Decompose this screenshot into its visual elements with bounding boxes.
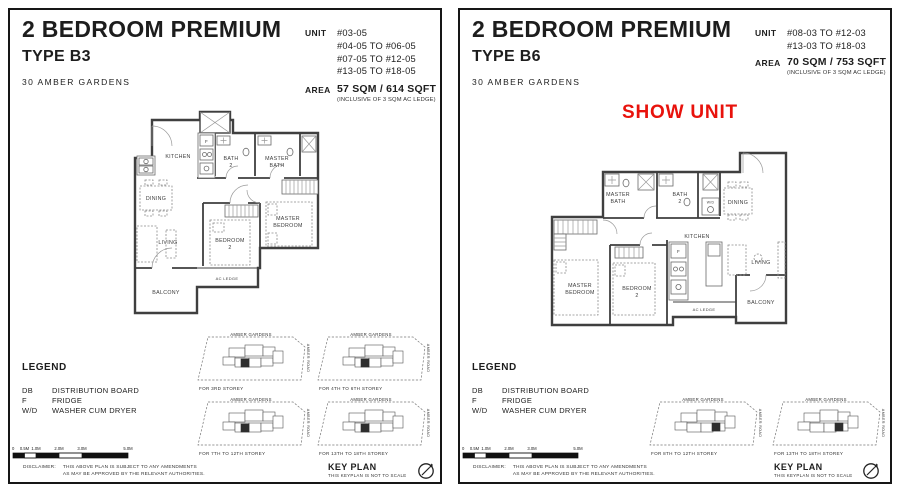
disclaimer: DISCLAIMER: THIS ABOVE PLAN IS SUBJECT T… — [473, 465, 655, 478]
svg-text:0: 0 — [12, 446, 15, 451]
room-label-living: LIVING — [751, 260, 770, 266]
keyplan-street-side: AMBER ROAD — [306, 344, 310, 373]
keyplan-caption: FOR 4TH TO 6TH STOREY — [319, 386, 382, 391]
kitchen-counter: F — [198, 133, 215, 178]
svg-text:2.0M: 2.0M — [54, 446, 64, 451]
legend-title: LEGEND — [472, 362, 589, 373]
disclaimer: DISCLAIMER: THIS ABOVE PLAN IS SUBJECT T… — [23, 465, 205, 478]
room-label-master-bath: MASTER — [606, 192, 630, 198]
svg-text:BEDROOM: BEDROOM — [565, 290, 594, 296]
svg-text:3.0M: 3.0M — [77, 446, 87, 451]
building-footprint — [223, 410, 283, 432]
legend-row: W/DWASHER CUM DRYER — [22, 406, 139, 416]
keyplan-caption: FOR 8TH TO 12TH STOREY — [651, 451, 717, 456]
unit-heading: UNIT — [755, 28, 776, 38]
disclaimer-text: THIS ABOVE PLAN IS SUBJECT TO ANY AMENDM… — [513, 465, 655, 478]
svg-text:5.0M: 5.0M — [573, 446, 583, 451]
legend-row: FFRIDGE — [472, 396, 589, 406]
keyplan-street-top: AMBER GARDENS — [230, 332, 272, 337]
svg-text:0.5M: 0.5M — [470, 446, 480, 451]
building-footprint — [675, 410, 735, 432]
unit-list: #08-03 TO #12-03 #13-03 TO #18-03 — [787, 27, 866, 53]
keyplan-caption: FOR 7TH TO 12TH STOREY — [199, 451, 265, 456]
highlighted-unit — [241, 424, 249, 432]
svg-text:3.0M: 3.0M — [527, 446, 537, 451]
room-label-balcony: BALCONY — [747, 300, 775, 306]
room-label-dining: DINING — [146, 196, 166, 202]
keyplan-note: THIS KEYPLAN IS NOT TO SCALE — [328, 473, 406, 478]
unit-list: #03-05 #04-05 TO #06-05 #07-05 TO #12-05… — [337, 27, 416, 78]
unit-line: #03-05 — [337, 27, 416, 40]
svg-text:AMBER ROAD: AMBER ROAD — [306, 409, 310, 438]
highlighted-unit — [712, 423, 720, 431]
svg-text:0.5M: 0.5M — [20, 446, 30, 451]
unit-line: #13-05 TO #18-05 — [337, 65, 416, 78]
svg-text:AMBER ROAD: AMBER ROAD — [426, 409, 430, 438]
keyplan-title: KEY PLAN — [774, 462, 852, 472]
svg-text:1.0M: 1.0M — [31, 446, 41, 451]
keyplan-footer: KEY PLAN THIS KEYPLAN IS NOT TO SCALE — [774, 462, 852, 478]
svg-text:5.0M: 5.0M — [123, 446, 133, 451]
area-note: (INCLUSIVE OF 3 SQM AC LEDGE) — [787, 70, 886, 76]
svg-text:AMBER GARDENS: AMBER GARDENS — [350, 332, 392, 337]
keyplan-caption: FOR 3RD STOREY — [199, 386, 243, 391]
highlighted-unit — [241, 359, 249, 367]
room-label-bedroom2: BEDROOM — [215, 238, 244, 244]
unit-line: #07-05 TO #12-05 — [337, 53, 416, 66]
svg-text:AMBER GARDENS: AMBER GARDENS — [805, 397, 847, 402]
unit-line: #13-03 TO #18-03 — [787, 40, 866, 53]
unit-heading: UNIT — [305, 28, 326, 38]
svg-text:AMBER GARDENS: AMBER GARDENS — [682, 397, 724, 402]
room-label-bedroom2: BEDROOM — [622, 286, 651, 292]
north-arrow-icon — [416, 460, 438, 482]
disclaimer-label: DISCLAIMER: — [23, 465, 56, 478]
building-footprint — [343, 410, 403, 432]
keyplan-13th-18th-storey: AMBER GARDENS AMBER ROAD FOR 13TH TO 18T… — [771, 396, 889, 460]
keyplan-3rd-storey: AMBER GARDENS AMBER ROAD FOR 3RD STOREY — [196, 331, 314, 395]
svg-text:BATH: BATH — [611, 199, 626, 205]
area-block: 57 SQM / 614 SQFT (INCLUSIVE OF 3 SQM AC… — [337, 83, 436, 103]
svg-text:0: 0 — [462, 446, 465, 451]
disclaimer-label: DISCLAIMER: — [473, 465, 506, 478]
highlighted-unit — [835, 423, 843, 431]
keyplan-4th-6th-storey: AMBER GARDENS AMBER ROAD FOR 4TH TO 6TH … — [316, 331, 434, 395]
keyplan-8th-12th-storey: AMBER GARDENS AMBER ROAD FOR 8TH TO 12TH… — [648, 396, 766, 460]
unit-line: #04-05 TO #06-05 — [337, 40, 416, 53]
floorplan-sheet-b6: 2 BEDROOM PREMIUM TYPE B6 30 AMBER GARDE… — [458, 8, 892, 484]
legend-row: FFRIDGE — [22, 396, 139, 406]
washer-dryer: W/D — [702, 198, 719, 215]
room-label-bath2: BATH — [224, 156, 239, 162]
room-label-bath2: BATH — [673, 192, 688, 198]
keyplan-title: KEY PLAN — [328, 462, 406, 472]
legend-row: W/DWASHER CUM DRYER — [472, 406, 589, 416]
room-label-master-bedroom: MASTER — [568, 283, 592, 289]
legend-row: DBDISTRIBUTION BOARD — [22, 386, 139, 396]
svg-text:AMBER ROAD: AMBER ROAD — [758, 409, 762, 438]
north-arrow-icon — [861, 460, 883, 482]
building-footprint — [223, 345, 283, 367]
svg-text:2: 2 — [678, 199, 681, 205]
unit-type-label: TYPE B6 — [472, 48, 541, 66]
svg-text:1.0M: 1.0M — [481, 446, 491, 451]
legend: LEGEND DBDISTRIBUTION BOARD FFRIDGE W/DW… — [472, 362, 589, 416]
area-value: 70 SQM / 753 SQFT — [787, 56, 886, 68]
page-title: 2 BEDROOM PREMIUM — [472, 16, 731, 43]
unit-line: #08-03 TO #12-03 — [787, 27, 866, 40]
room-label-kitchen: KITCHEN — [684, 234, 709, 240]
svg-text:AMBER ROAD: AMBER ROAD — [881, 409, 885, 438]
svg-text:2.0M: 2.0M — [504, 446, 514, 451]
room-label-balcony: BALCONY — [152, 290, 180, 296]
legend-row: DBDISTRIBUTION BOARD — [472, 386, 589, 396]
fridge-label: F — [677, 249, 680, 254]
keyplan-caption: FOR 13TH TO 18TH STOREY — [319, 451, 388, 456]
floorplan-drawing-b3: F — [100, 100, 350, 330]
keyplan-footer: KEY PLAN THIS KEYPLAN IS NOT TO SCALE — [328, 462, 406, 478]
fridge-label: F — [205, 139, 208, 144]
room-label-master-bath: MASTER — [265, 156, 289, 162]
floorplan-drawing-b6: W/D F — [540, 130, 820, 350]
svg-text:2: 2 — [229, 163, 232, 169]
disclaimer-text: THIS ABOVE PLAN IS SUBJECT TO ANY AMENDM… — [63, 465, 205, 478]
wd-label: W/D — [707, 201, 715, 205]
building-footprint — [798, 410, 858, 432]
room-label-dining: DINING — [728, 200, 748, 206]
svg-text:AMBER GARDENS: AMBER GARDENS — [350, 397, 392, 402]
svg-text:BATH: BATH — [270, 163, 285, 169]
project-name: 30 AMBER GARDENS — [472, 77, 580, 87]
area-value: 57 SQM / 614 SQFT — [337, 83, 436, 95]
svg-text:AMBER ROAD: AMBER ROAD — [426, 344, 430, 373]
area-heading: AREA — [755, 58, 781, 68]
unit-type-label: TYPE B3 — [22, 48, 91, 66]
building-footprint — [343, 345, 403, 367]
keyplan-13th-18th-storey: AMBER GARDENS AMBER ROAD FOR 13TH TO 18T… — [316, 396, 434, 460]
keyplan-7th-12th-storey: AMBER GARDENS AMBER ROAD FOR 7TH TO 12TH… — [196, 396, 314, 460]
area-block: 70 SQM / 753 SQFT (INCLUSIVE OF 3 SQM AC… — [787, 56, 886, 76]
floorplan-sheet-b3: 2 BEDROOM PREMIUM TYPE B3 30 AMBER GARDE… — [8, 8, 442, 484]
room-label-master-bedroom: MASTER — [276, 216, 300, 222]
svg-text:BEDROOM: BEDROOM — [273, 223, 302, 229]
room-label-ac-ledge: AC LEDGE — [216, 276, 239, 281]
room-label-kitchen: KITCHEN — [165, 154, 190, 160]
area-note: (INCLUSIVE OF 3 SQM AC LEDGE) — [337, 97, 436, 103]
svg-text:AMBER GARDENS: AMBER GARDENS — [230, 397, 272, 402]
highlighted-unit — [361, 424, 369, 432]
keyplan-caption: FOR 13TH TO 18TH STOREY — [774, 451, 843, 456]
page-title: 2 BEDROOM PREMIUM — [22, 16, 281, 43]
show-unit-badge: SHOW UNIT — [595, 102, 765, 124]
svg-text:2: 2 — [635, 293, 638, 299]
room-label-living: LIVING — [158, 240, 177, 246]
svg-text:2: 2 — [228, 245, 231, 251]
legend: LEGEND DBDISTRIBUTION BOARD FFRIDGE W/DW… — [22, 362, 139, 416]
washer-dryer-closet — [137, 156, 155, 175]
legend-title: LEGEND — [22, 362, 139, 373]
project-name: 30 AMBER GARDENS — [22, 77, 130, 87]
keyplan-note: THIS KEYPLAN IS NOT TO SCALE — [774, 473, 852, 478]
area-heading: AREA — [305, 85, 331, 95]
highlighted-unit — [361, 359, 369, 367]
room-label-ac-ledge: AC LEDGE — [693, 307, 716, 312]
